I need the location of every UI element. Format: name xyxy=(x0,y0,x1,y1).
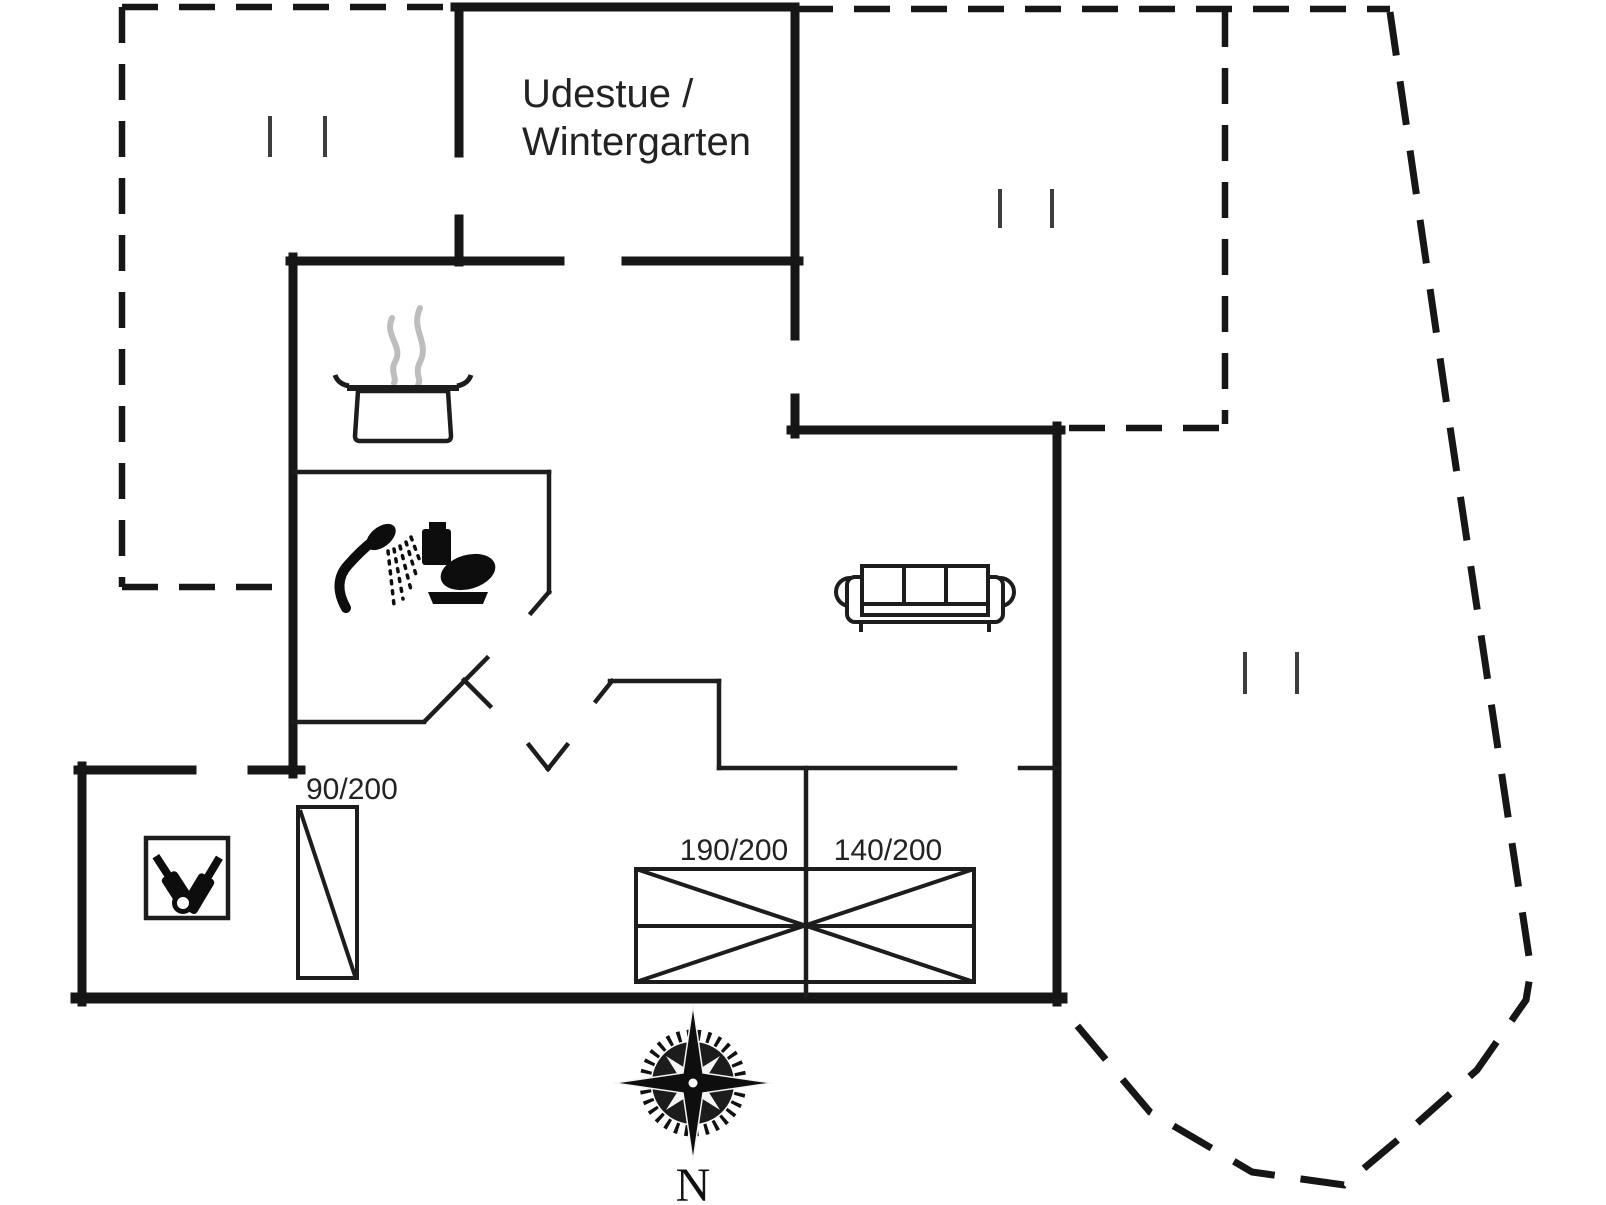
sunroom-label-line2: Wintergarten xyxy=(522,120,751,164)
pot-with-steam-icon xyxy=(335,308,471,441)
window-tick-pair-icon-left-terrace xyxy=(270,116,325,157)
floor-plan-page: Udestue / Wintergarten 90/200 190/200 14… xyxy=(0,0,1606,1205)
steam-wave-1 xyxy=(390,318,397,383)
three-seat-sofa-icon xyxy=(836,566,1014,632)
compass-rose-icon xyxy=(614,1005,772,1161)
garden-boundary-dashed xyxy=(1064,12,1531,1185)
hall-double-door-right xyxy=(548,745,567,769)
hall-double-door-left xyxy=(529,745,548,769)
sofa-seat-edge xyxy=(862,604,988,615)
garden-boundary-path xyxy=(1064,12,1531,1185)
pot-handle-right xyxy=(457,375,471,386)
wardrobe-diagonal xyxy=(300,810,355,976)
compass-north-label: N xyxy=(676,1159,711,1205)
bathroom-door-tick xyxy=(531,592,549,613)
toilet-tank xyxy=(422,529,451,565)
bathroom-door-leaf-tick xyxy=(464,680,490,706)
sofa-backrest xyxy=(862,566,988,604)
bed-large-dim-label: 190/200 xyxy=(680,834,788,867)
wardrobe-dim-label: 90/200 xyxy=(306,773,398,806)
toilet-icon xyxy=(422,522,500,604)
bottle-ring xyxy=(175,895,192,912)
pot-body xyxy=(355,391,451,441)
floor-plan-drawing: Udestue / Wintergarten 90/200 190/200 14… xyxy=(0,0,1606,1205)
text-labels: Udestue / Wintergarten 90/200 190/200 14… xyxy=(306,72,942,1205)
shower-arm xyxy=(339,541,373,608)
compass-center-dot xyxy=(689,1079,698,1088)
sunroom-label-line1: Udestue / xyxy=(522,72,694,116)
pot-handle-left xyxy=(335,375,349,386)
bottle-crate-icon xyxy=(146,838,228,918)
terrace-boundary-dashed xyxy=(122,7,1390,587)
toilet-base xyxy=(428,592,488,604)
window-tick-pair-icon-right-terrace xyxy=(1000,189,1052,228)
hall-wall-door-tick xyxy=(596,681,612,701)
shower-spray xyxy=(388,537,421,605)
steam-wave-2 xyxy=(417,308,423,385)
window-tick-pair-icon-east-garden xyxy=(1245,652,1297,694)
wardrobe-diagonal-icon xyxy=(298,807,357,978)
bathroom-door-leaf xyxy=(425,658,487,721)
bed-small-dim-label: 140/200 xyxy=(834,834,942,867)
shower-spray-icon xyxy=(339,519,421,608)
